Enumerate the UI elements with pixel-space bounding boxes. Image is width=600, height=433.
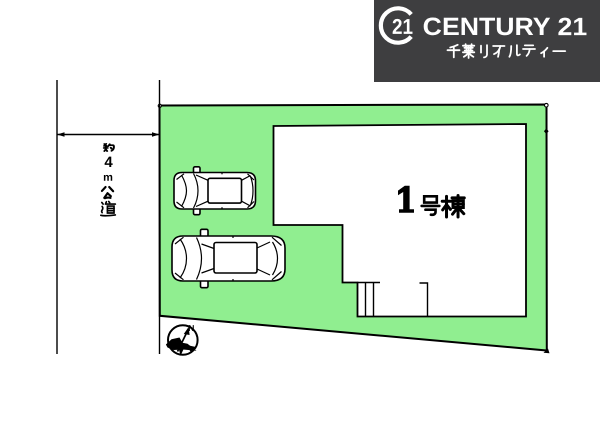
svg-text:m: m: [103, 172, 113, 184]
svg-text:21: 21: [392, 15, 413, 39]
svg-text:CENTURY 21: CENTURY 21: [423, 13, 588, 41]
svg-text:N: N: [188, 323, 194, 333]
svg-text:4: 4: [104, 154, 113, 171]
